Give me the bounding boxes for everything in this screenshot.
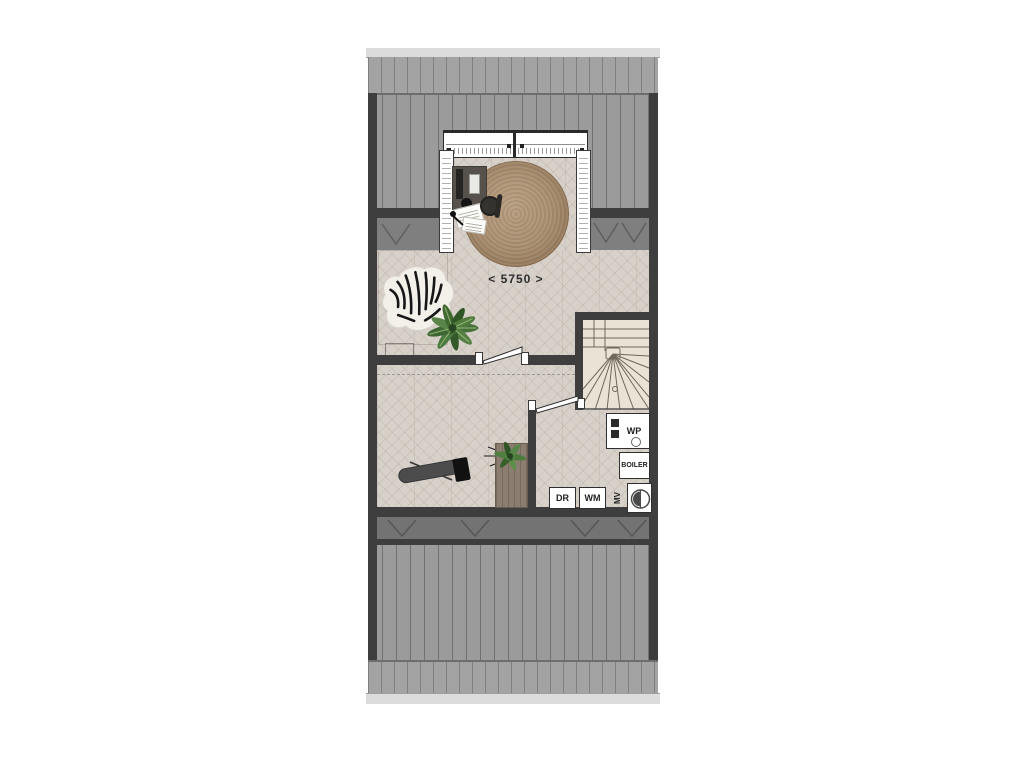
ironing-board: [396, 455, 472, 487]
door-leaf-bedroom: [483, 347, 522, 364]
plan-overlay: [366, 48, 660, 703]
sideboard-plant: [494, 440, 526, 472]
floor-plan: < 5750 >: [366, 48, 660, 703]
dryer-label: DR: [550, 488, 575, 508]
door-leaf-techroom: [536, 396, 578, 413]
heat-pump-dial-icon: [631, 437, 641, 447]
mech-vent-label: MV: [607, 491, 627, 505]
washer-unit: WM: [579, 487, 606, 509]
heat-pump-connection: [611, 419, 619, 427]
heat-pump-unit: WP: [606, 413, 650, 449]
dryer-unit: DR: [549, 487, 576, 509]
desk-lamp: [450, 211, 463, 225]
mech-vent-unit: [627, 483, 652, 513]
washer-label: WM: [580, 488, 605, 508]
fan-icon: [628, 484, 653, 514]
heat-pump-connection: [611, 430, 619, 438]
boiler-unit: BOILER: [619, 452, 650, 479]
boiler-label: BOILER: [620, 453, 649, 478]
